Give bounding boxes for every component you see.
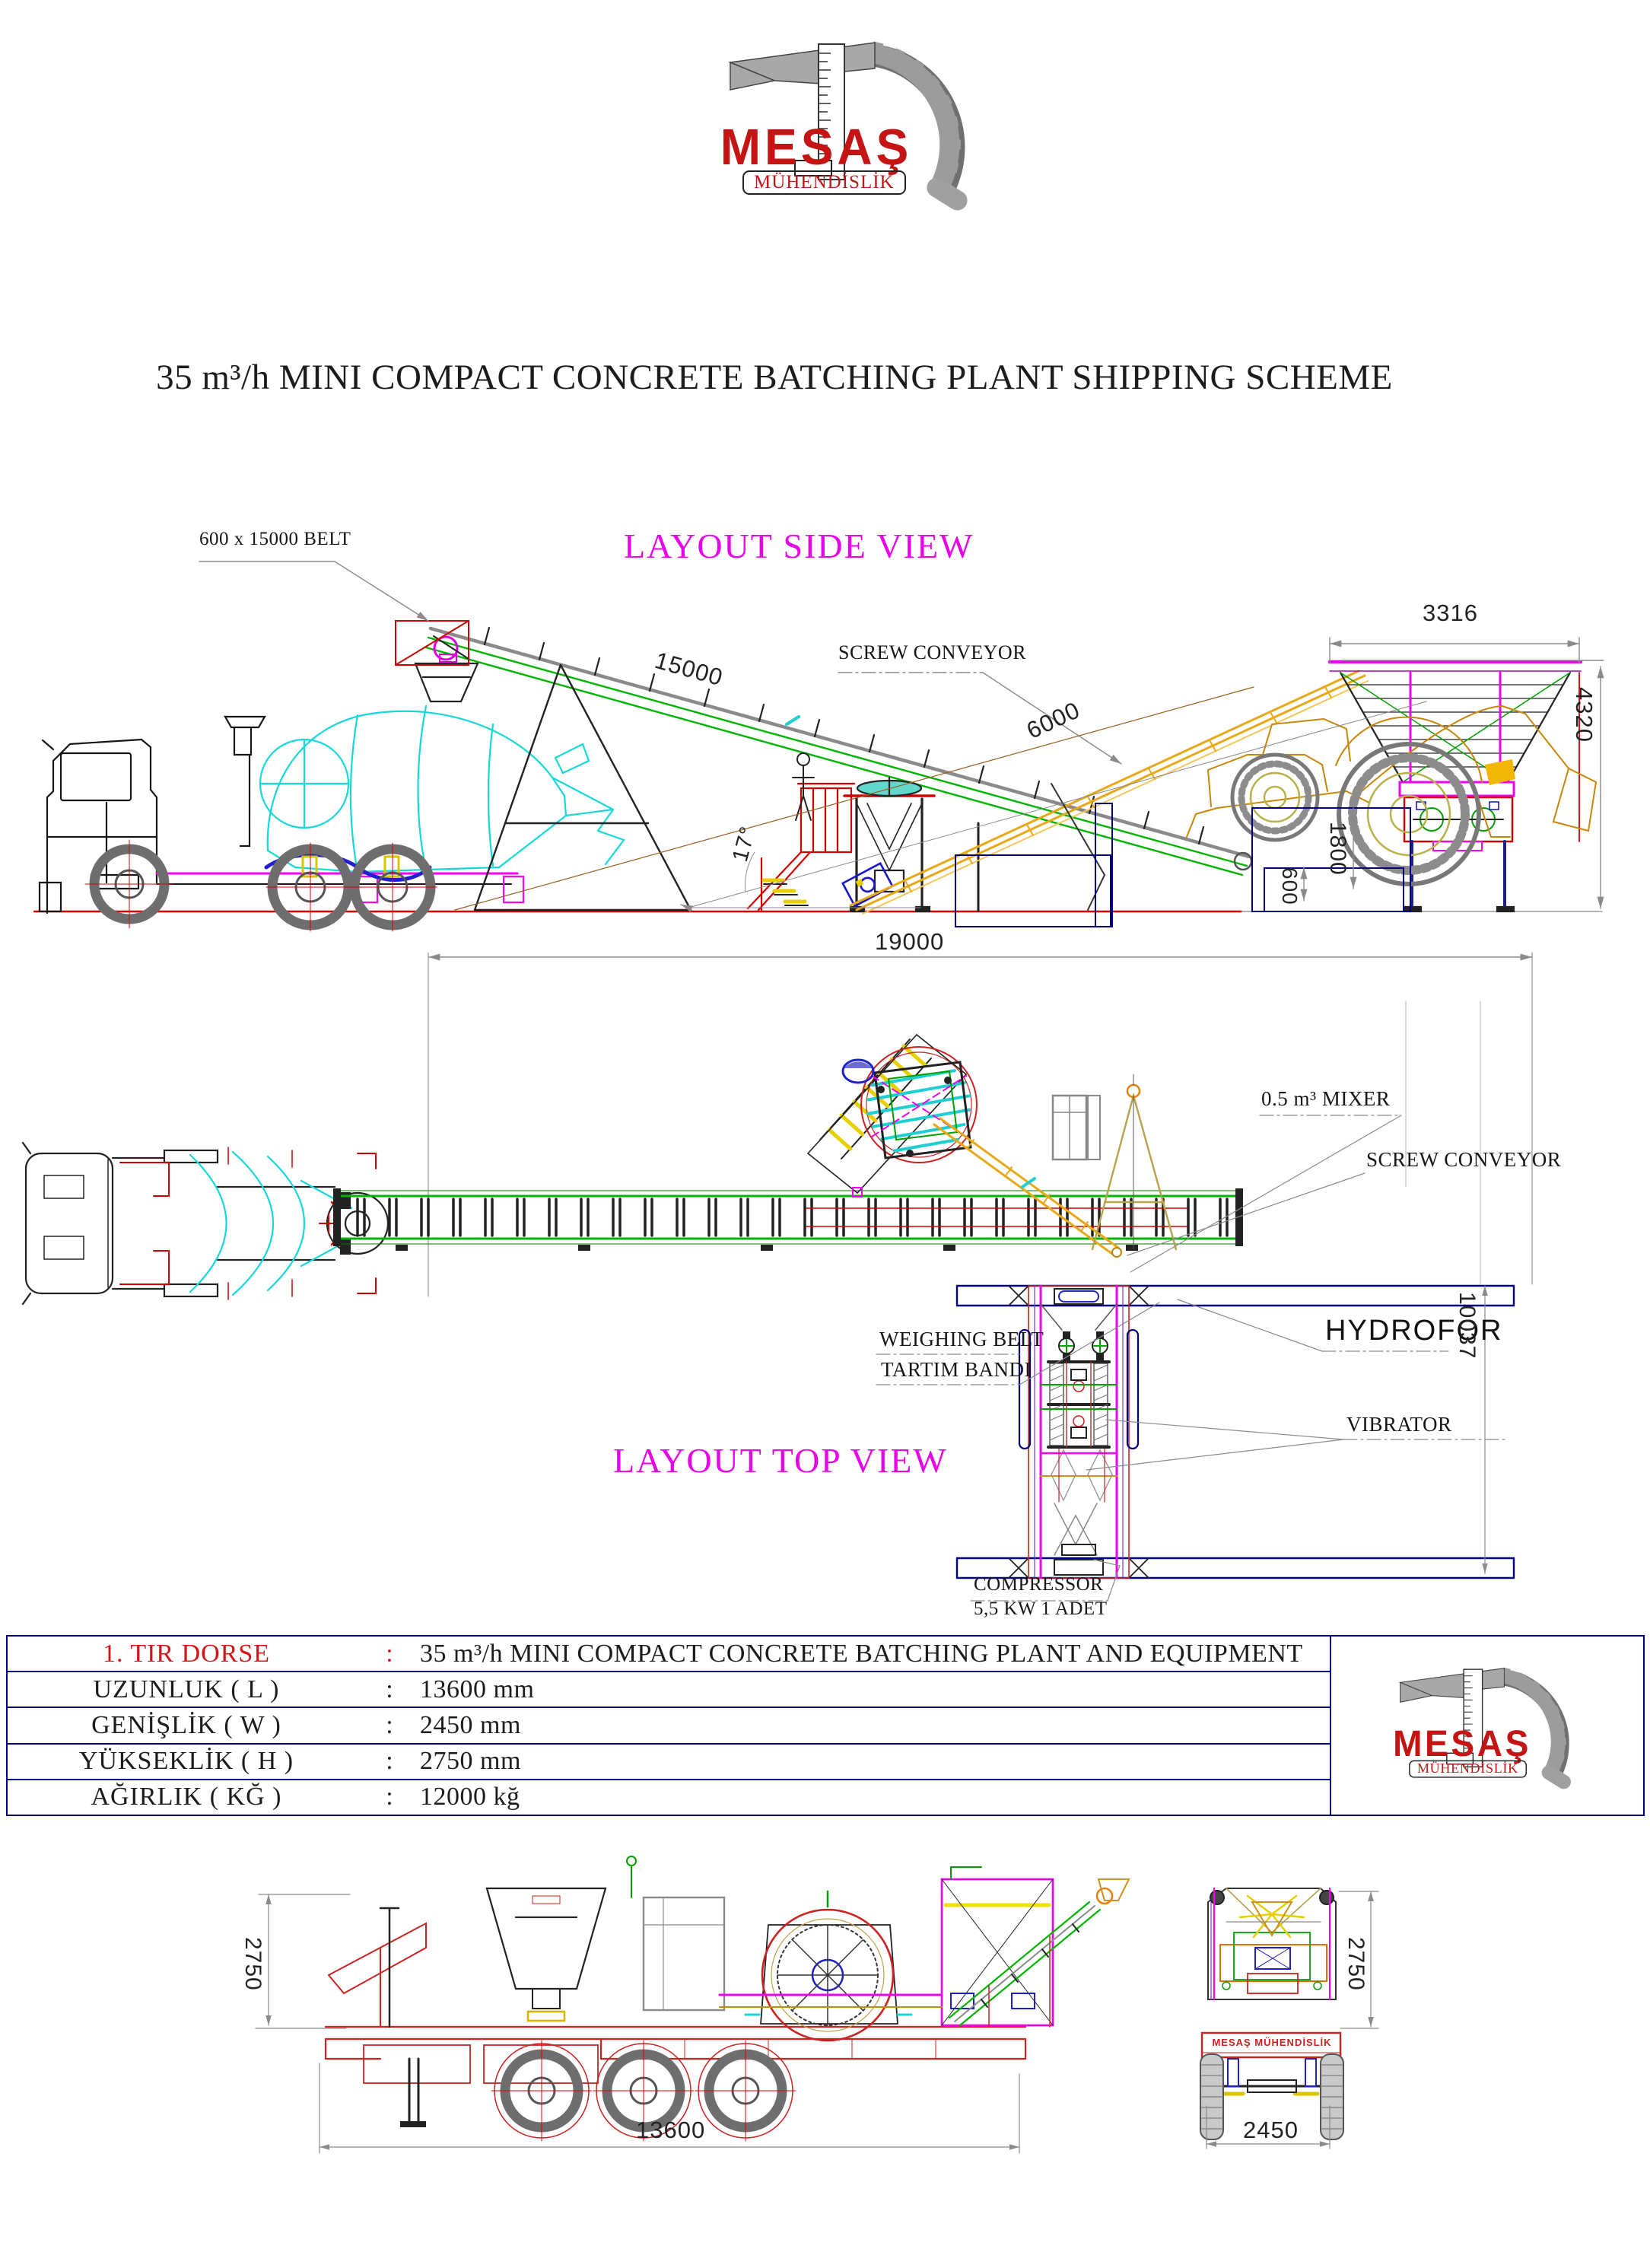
row-value: 2450 mm [414, 1711, 1330, 1740]
dim-trailer-length: 13600 [636, 2118, 705, 2143]
dim-total-length: 19000 [875, 930, 944, 955]
compressor-label: COMPRESSOR [974, 1575, 1103, 1595]
shipping-scheme-drawing: MESAŞ MÜHENDİSLİK 35 m³/h MINI COMPACT C… [0, 0, 1650, 2268]
row-label: GENİŞLİK ( W ) [8, 1711, 365, 1740]
row-label: 1. TIR DORSE [8, 1640, 365, 1668]
row-label: UZUNLUK ( L ) [8, 1675, 365, 1704]
mesas-logo-small: MESAŞ MÜHENDİSLİK [1366, 1644, 1585, 1789]
trailer-marking: MESAŞ MÜHENDİSLİK [1207, 2037, 1337, 2048]
main-belt-conveyor-side [396, 621, 1251, 875]
dim-hopper-width: 3316 [1423, 601, 1478, 626]
row-separator: : [365, 1747, 414, 1776]
table-row: GENİŞLİK ( W ) : 2450 mm [8, 1708, 1330, 1744]
mixer-top [808, 1035, 1176, 1257]
logo-subtitle: MÜHENDİSLİK [742, 170, 906, 195]
dim-trailer-width: 2450 [1243, 2118, 1299, 2143]
dim-plant-length: 10037 [1455, 1292, 1480, 1359]
dim-trailer-height-rear: 2750 [1344, 1937, 1369, 1991]
transit-mixer-truck-side [40, 706, 624, 931]
compressor-spec: 5,5 KW 1 ADET [974, 1599, 1107, 1619]
page-title: 35 m³/h MINI COMPACT CONCRETE BATCHING P… [21, 359, 1528, 396]
spec-rows: 1. TIR DORSE : 35 m³/h MINI COMPACT CONC… [8, 1637, 1330, 1815]
dim-discharge-height: 1800 [1326, 822, 1350, 876]
belt-label: 600 x 15000 BELT [199, 530, 351, 549]
loaded-trailer-rear [1200, 1888, 1378, 2149]
table-row: AĞIRLIK ( KĞ ) : 12000 kğ [8, 1780, 1330, 1815]
dim-trailer-height-side: 2750 [241, 1937, 265, 1991]
dim-overall-height: 4320 [1571, 687, 1596, 743]
screw-conveyor-label-side: SCREW CONVEYOR [838, 642, 1026, 663]
row-value: 2750 mm [414, 1747, 1330, 1776]
row-separator: : [365, 1711, 414, 1740]
dim-clearance: 600 [1279, 867, 1301, 905]
screw-conveyor-label-top: SCREW CONVEYOR [1366, 1149, 1561, 1170]
trailer-cargo-side [329, 1856, 1129, 2041]
cad-line-art [0, 0, 1650, 2268]
row-label: AĞIRLIK ( KĞ ) [8, 1783, 365, 1812]
row-value: 35 m³/h MINI COMPACT CONCRETE BATCHING P… [414, 1640, 1330, 1668]
row-label: YÜKSEKLİK ( H ) [8, 1747, 365, 1776]
top-view-heading: LAYOUT TOP VIEW [613, 1443, 948, 1479]
top-view-dimensions [876, 1001, 1506, 1601]
row-separator: : [365, 1640, 414, 1668]
logo-wordmark: MESAŞ [706, 117, 927, 177]
table-row: 1. TIR DORSE : 35 m³/h MINI COMPACT CONC… [8, 1637, 1330, 1672]
side-view-heading: LAYOUT SIDE VIEW [624, 528, 974, 565]
table-row: YÜKSEKLİK ( H ) : 2750 mm [8, 1745, 1330, 1780]
spec-logo-cell: MESAŞ MÜHENDİSLİK [1330, 1637, 1643, 1815]
row-value: 12000 kğ [414, 1783, 1330, 1812]
mixer-label: 0.5 m³ MIXER [1261, 1088, 1390, 1109]
logo-wordmark: MESAŞ [1383, 1722, 1542, 1764]
table-row: UZUNLUK ( L ) : 13600 mm [8, 1672, 1330, 1708]
row-value: 13600 mm [414, 1675, 1330, 1704]
mesas-logo: MESAŞ MÜHENDİSLİK [683, 9, 987, 211]
row-separator: : [365, 1675, 414, 1704]
logo-subtitle: MÜHENDİSLİK [1409, 1761, 1527, 1778]
shipping-drawings [256, 1856, 1378, 2153]
weighing-belt-label-en: WEIGHING BELT [879, 1328, 1044, 1350]
row-separator: : [365, 1783, 414, 1812]
loaded-trailer-side [256, 1856, 1129, 2153]
vibrator-label: VIBRATOR [1346, 1414, 1452, 1435]
weighing-belt-label-tr: TARTIM BANDI [881, 1359, 1032, 1380]
weighing-belt-rollers [1059, 1331, 1108, 1360]
spec-table: 1. TIR DORSE : 35 m³/h MINI COMPACT CONC… [6, 1635, 1645, 1816]
